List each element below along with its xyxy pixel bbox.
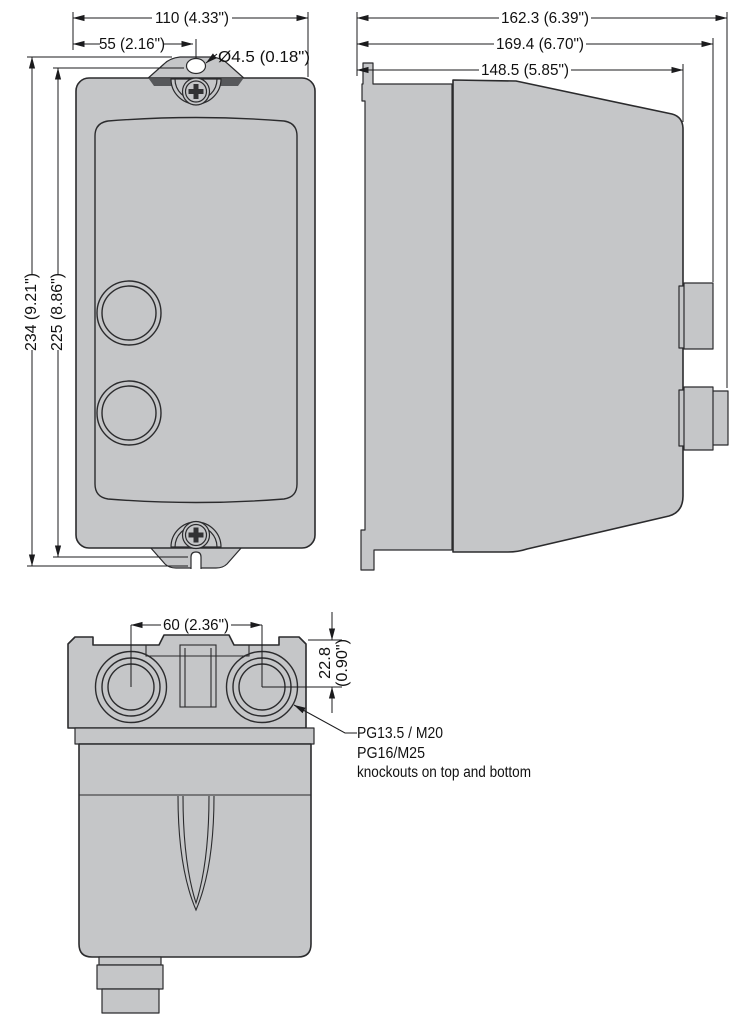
front-view: 110 (4.33") 55 (2.16") Ø4.5 (0.18") 234 … — [23, 10, 315, 569]
dim-front-hole-offset: 55 (2.16") — [73, 36, 196, 58]
dim-label-hole-diameter: Ø4.5 (0.18") — [218, 49, 310, 66]
top-mounting-screw — [183, 78, 210, 105]
bottom-flange — [75, 728, 314, 744]
knockout-note-line3: knockouts on top and bottom — [357, 764, 531, 781]
bottom-knockout-block — [68, 635, 306, 728]
dim-label-depth-overall: 162.3 (6.39") — [501, 10, 589, 27]
side-knockout-boss-lower — [679, 387, 728, 450]
dim-label-hole-offset: 55 (2.16") — [99, 36, 165, 53]
bottom-connector-boss — [97, 957, 163, 1013]
bottom-mounting-screw — [183, 522, 210, 549]
dim-label-depth-max: 169.4 (6.70") — [496, 36, 584, 53]
knockout-note: PG13.5 / M20 PG16/M25 knockouts on top a… — [294, 705, 531, 781]
dim-label-hole-spacing: 225 (8.86") — [49, 273, 66, 351]
side-knockout-boss-upper — [679, 283, 713, 349]
front-body — [76, 78, 315, 548]
bottom-body — [79, 744, 311, 957]
drawing-canvas: 110 (4.33") 55 (2.16") Ø4.5 (0.18") 234 … — [0, 0, 742, 1015]
knockout-note-line2: PG16/M25 — [357, 745, 425, 762]
dim-label-knockout-offset-in: (0.90") — [334, 639, 351, 687]
side-body — [453, 80, 683, 552]
dim-label-knockout-spacing: 60 (2.36") — [163, 617, 229, 634]
dim-front-hole-diameter: Ø4.5 (0.18") — [206, 49, 310, 66]
dim-label-depth-body: 148.5 (5.85") — [481, 62, 569, 79]
top-mounting-hole — [187, 59, 206, 74]
bottom-view: 60 (2.36") 22.8 (0.90") PG13.5 / M20 PG1… — [68, 612, 531, 1013]
knockout-note-line1: PG13.5 / M20 — [357, 725, 443, 742]
dim-label-knockout-offset-mm: 22.8 — [317, 647, 334, 679]
side-back-plate — [361, 63, 452, 570]
technical-drawing: 110 (4.33") 55 (2.16") Ø4.5 (0.18") 234 … — [0, 0, 742, 1015]
dim-label-overall-width: 110 (4.33") — [155, 10, 229, 27]
bottom-mounting-slot — [191, 552, 201, 569]
side-view: 162.3 (6.39") 169.4 (6.70") 148.5 (5.85"… — [357, 10, 728, 570]
dim-label-overall-height: 234 (9.21") — [23, 273, 40, 351]
